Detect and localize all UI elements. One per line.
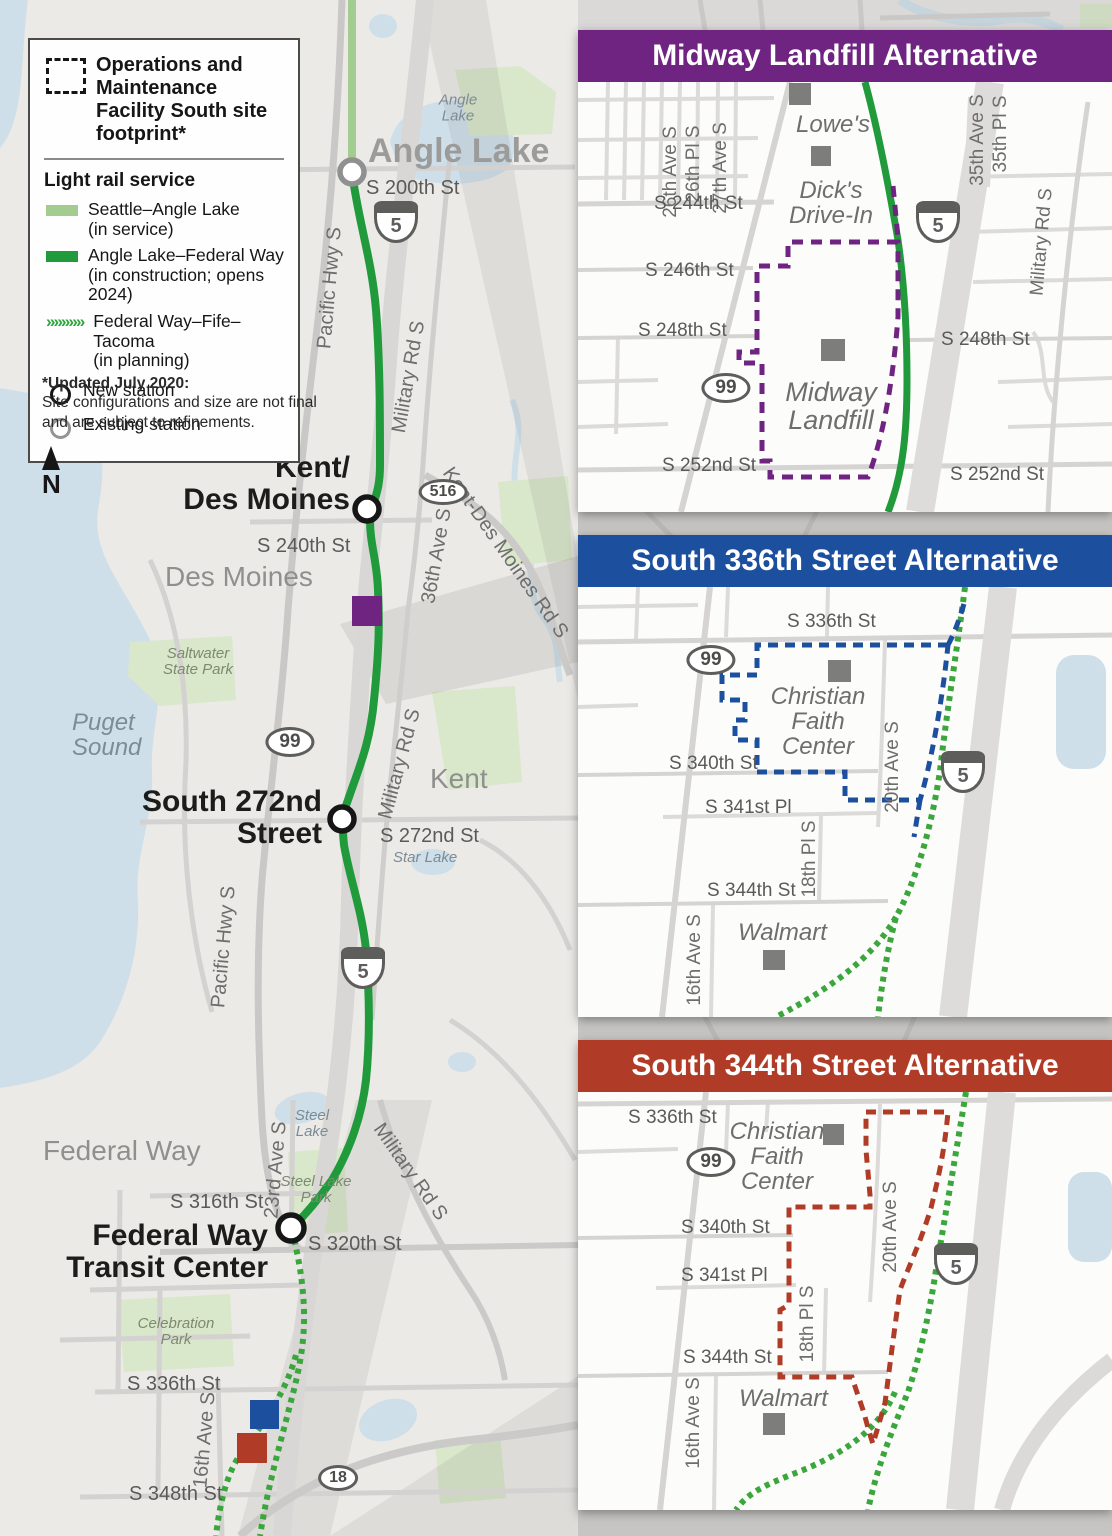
inset3-i5-shield: 5	[934, 1243, 978, 1285]
inset3-label-20th-ave: 20th Ave S	[881, 1181, 901, 1273]
inset2-label-16th-ave: 16th Ave S	[685, 914, 705, 1006]
street-label-s272: S 272nd St	[380, 826, 479, 847]
walmart-square	[763, 950, 785, 970]
in-service-swatch	[46, 205, 78, 216]
inset3-label-s340: S 340th St	[681, 1218, 770, 1238]
city-label-federal-way: Federal Way	[43, 1136, 201, 1165]
water-label-puget-sound: PugetSound	[72, 710, 141, 760]
inset-south-344th: South 344th Street Alternative	[578, 1040, 1112, 1510]
lowes-square	[789, 83, 811, 105]
inset1-label-35th-ave: 35th Ave S	[968, 94, 988, 186]
inset1-label-midway-landfill: MidwayLandfill	[785, 378, 877, 435]
street-label-s240: S 240th St	[257, 536, 350, 557]
route-99-shield-main: 99	[265, 727, 314, 757]
midway-site-square	[352, 596, 382, 626]
inset-midway-canvas	[578, 82, 1112, 512]
park-label-saltwater: SaltwaterState Park	[163, 646, 233, 678]
inset2-label-s340: S 340th St	[669, 754, 758, 774]
inset-south-336th: South 336th Street Alternative	[578, 535, 1112, 1017]
inset2-label-20th-ave: 20th Ave S	[883, 721, 903, 813]
water-label-steel-lake: SteelLake	[295, 1108, 329, 1140]
route-18-shield: 18	[318, 1465, 358, 1491]
inset3-route-99-shield: 99	[686, 1147, 735, 1177]
station-label-s272: South 272ndStreet	[142, 786, 322, 851]
city-label-kent: Kent	[430, 764, 488, 793]
i5-shield-main-north: 5	[374, 201, 418, 243]
legend-section-title: Light rail service	[44, 170, 284, 192]
map-poster: Angle Lake S 200th St Kent/Des Moines S …	[0, 0, 1112, 1536]
inset1-label-26th-pl: 26th Pl S	[684, 125, 704, 202]
inset3-label-s341: S 341st Pl	[681, 1266, 768, 1286]
street-label-s316: S 316th St	[170, 1192, 263, 1213]
legend-divider	[44, 158, 284, 160]
station-angle-lake	[340, 160, 364, 184]
inset1-i5-shield: 5	[916, 201, 960, 243]
street-label-s320: S 320th St	[308, 1234, 401, 1255]
station-south-272nd	[330, 807, 354, 831]
in-planning-chevron-icon: »»»»»	[46, 312, 83, 332]
legend-title: Operations and Maintenance Facility Sout…	[96, 54, 284, 146]
inset2-label-18th-pl: 18th Pl S	[800, 820, 820, 897]
city-label-des-moines: Des Moines	[165, 562, 313, 591]
inset3-label-16th-ave: 16th Ave S	[684, 1377, 704, 1469]
inset2-label-s344: S 344th St	[707, 881, 796, 901]
park-label-celebration: CelebrationPark	[138, 1316, 215, 1348]
inset2-i5-shield: 5	[941, 751, 985, 793]
inset-midway-landfill: Midway Landfill Alternative	[578, 30, 1112, 512]
inset2-label-s336: S 336th St	[787, 612, 876, 632]
legend-item-in-service: Seattle–Angle Lake(in service)	[44, 200, 284, 239]
midway-landfill-square	[821, 339, 845, 361]
inset3-label-18th-pl: 18th Pl S	[798, 1285, 818, 1362]
inset-s344-canvas	[578, 1092, 1112, 1510]
inset1-label-35th-pl: 35th Pl S	[991, 95, 1011, 172]
north-arrow-icon	[42, 446, 60, 470]
s344-site-square	[237, 1433, 267, 1463]
water-label-star-lake: Star Lake	[393, 850, 457, 866]
inset-s344-header: South 344th Street Alternative	[578, 1040, 1112, 1092]
inset1-label-s248-left: S 248th St	[638, 321, 727, 341]
inset1-label-lowes: Lowe's	[796, 112, 870, 137]
inset2-route-99-shield: 99	[686, 645, 735, 675]
inset1-label-s246: S 246th St	[645, 261, 734, 281]
inset1-label-s252-right: S 252nd St	[950, 465, 1044, 485]
inset1-label-dicks: Dick'sDrive-In	[789, 178, 873, 228]
walmart-square-3	[763, 1413, 785, 1435]
footprint-dashed-icon	[46, 58, 86, 94]
inset-midway-header: Midway Landfill Alternative	[578, 30, 1112, 82]
water-label-angle-lake: AngleLake	[439, 92, 477, 124]
inset1-label-s244: S 244th St	[654, 194, 743, 214]
dicks-square	[811, 146, 831, 166]
legend-item-in-planning: »»»»» Federal Way–Fife–Tacoma(in plannin…	[44, 312, 284, 371]
route-516-shield: 516	[419, 479, 468, 505]
inset3-label-s336: S 336th St	[628, 1108, 717, 1128]
street-label-s200: S 200th St	[366, 178, 459, 199]
inset-s336-canvas	[578, 587, 1112, 1017]
legend-item-in-construction: Angle Lake–Federal Way(in construction; …	[44, 246, 284, 305]
inset1-label-s248-right: S 248th St	[941, 330, 1030, 350]
inset2-label-s341: S 341st Pl	[705, 798, 792, 818]
station-label-angle-lake: Angle Lake	[368, 134, 549, 170]
inset3-label-cfc: ChristianFaith Center	[730, 1119, 825, 1195]
in-construction-swatch	[46, 251, 78, 262]
inset3-label-walmart: Walmart	[739, 1386, 828, 1411]
inset3-label-s344: S 344th St	[683, 1348, 772, 1368]
inset1-label-s252-left: S 252nd St	[662, 456, 756, 476]
park-label-steel-lake-park: Steel LakePark	[281, 1174, 352, 1206]
s336-site-square	[250, 1400, 279, 1429]
i5-shield-main-south: 5	[341, 947, 385, 989]
cfc-square-3	[823, 1124, 844, 1145]
inset-s336-header: South 336th Street Alternative	[578, 535, 1112, 587]
inset1-route-99-shield: 99	[701, 373, 750, 403]
north-arrow: N	[42, 446, 61, 499]
cfc-square	[828, 660, 851, 682]
update-note: *Updated July 2020: Site configurations …	[42, 374, 317, 432]
station-label-fwtc: Federal WayTransit Center	[66, 1220, 268, 1285]
station-kent-des-moines	[355, 497, 379, 521]
inset2-label-cfc: ChristianFaith Center	[771, 684, 866, 760]
inset2-label-walmart: Walmart	[738, 920, 827, 945]
